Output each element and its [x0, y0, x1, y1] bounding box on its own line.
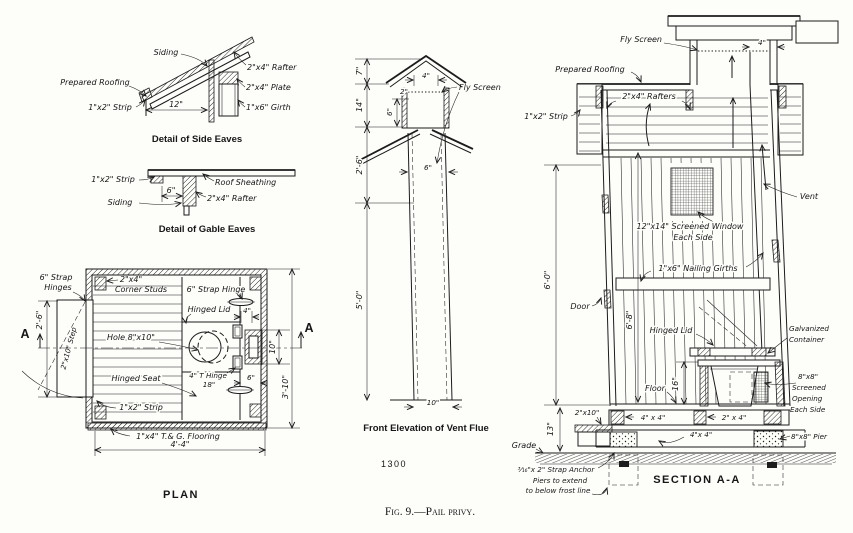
dim-12: 12"	[169, 100, 183, 109]
prepared-roofing-label: Prepared Roofing	[60, 78, 130, 87]
dim-6: 6"	[167, 186, 176, 195]
screened-window	[671, 168, 713, 215]
dim-7: 7"	[355, 67, 364, 76]
door-label: Door	[570, 302, 590, 311]
bench-top	[698, 360, 780, 366]
opening-label: Each Side	[790, 405, 826, 414]
dim-2: 2"	[400, 87, 408, 96]
strip-label: 1"x2" Strip	[91, 175, 135, 184]
hinged-lid-label: Hinged Lid	[650, 326, 694, 335]
opening-label: Opening	[792, 394, 823, 403]
dim-6-top: 6"	[385, 108, 394, 116]
bench-riser	[700, 366, 708, 406]
shaft-post	[686, 90, 693, 110]
pail-privy-drawing: 12" Siding Prepared Roofing 1"x2" Strip …	[0, 0, 853, 533]
ground-hatch	[535, 454, 836, 463]
flooring-strip	[88, 423, 266, 430]
fly-screen-label: Fly Screen	[620, 35, 662, 44]
hinged-seat-label: Hinged Seat	[112, 374, 162, 383]
strip-label: 1"x2" Strip	[524, 112, 568, 121]
vent-label: Vent	[800, 192, 819, 201]
strap-hinges-label: 6" Strap	[40, 273, 73, 282]
figure-page: 12" Siding Prepared Roofing 1"x2" Strip …	[0, 0, 853, 533]
corner-stud	[95, 277, 106, 290]
right-pier	[754, 431, 783, 447]
dim-6-0: 6'-0"	[543, 271, 552, 290]
main-roof-slopes	[358, 134, 471, 166]
detail-gable-eaves: 6" 1"x2" Strip Siding Roof Sheathing 2"x…	[91, 170, 295, 235]
floor-label: Floor	[645, 384, 666, 393]
plate-label: 2"x4" Plate	[246, 83, 291, 92]
section-a-a: 4" 4" x 4" 2" x 4" 2"x10" 4"x 4"	[512, 16, 838, 495]
side-eaves-title: Detail of Side Eaves	[152, 134, 242, 145]
dim-2-6: 2'-6"	[355, 156, 364, 175]
prepared-roofing-label: Prepared Roofing	[555, 65, 625, 74]
window-label: Each Side	[673, 233, 712, 242]
dim-18: 18"	[203, 380, 215, 389]
dim-10: 10"	[427, 398, 439, 407]
floor-boards	[93, 286, 182, 412]
grade-label: Grade	[512, 441, 536, 450]
dim-5-0: 5'-0"	[355, 291, 364, 310]
flue-body	[408, 133, 452, 400]
plan-view: 2"x10" Step A A 2'-6" 10" 3'-10" 4'-4" 6…	[20, 269, 313, 501]
entrance-step	[575, 425, 612, 432]
vent-flue-elevation: 4" 2" 6" 6" 7" 14" 2'-6" 5'-0" 10" Fly S…	[355, 56, 501, 469]
corner-stud	[95, 406, 106, 419]
figure-caption: Fig. 9.—Pail privy.	[385, 506, 475, 518]
dim-4x4-joist: 4" x 4"	[641, 413, 666, 422]
strip-label: 1"x2" Strip	[88, 103, 132, 112]
siding-label: Siding	[154, 48, 179, 57]
dim-14: 14"	[355, 98, 364, 112]
section-marker-a-left: A	[20, 327, 29, 341]
plate-section	[219, 72, 238, 84]
piers-note: to below frost line	[526, 486, 591, 495]
detail-side-eaves: 12" Siding Prepared Roofing 1"x2" Strip …	[60, 37, 297, 145]
middle-girth	[616, 278, 770, 290]
roof-sheathing-label: Roof Sheathing	[215, 178, 276, 187]
dim-4-4: 4'-4"	[171, 440, 190, 449]
section-marker-a-right: A	[304, 321, 313, 335]
left-pier	[610, 432, 637, 447]
plan-title: PLAN	[163, 489, 199, 501]
gable-siding	[184, 206, 189, 215]
rafter-label: 2"x4" Rafter	[247, 63, 297, 72]
seat-hole-dashed	[198, 331, 228, 363]
opening-label: Screened	[792, 383, 826, 392]
siding-label: Siding	[108, 198, 133, 207]
piers-note: Piers to extend	[533, 476, 588, 485]
hinged-lid-label: Hinged Lid	[188, 305, 232, 314]
gable-eaves-title: Detail of Gable Eaves	[159, 224, 256, 235]
hole-label: Hole 8"x10"	[107, 333, 155, 342]
seat-platform-edges	[182, 277, 240, 420]
corner-stud	[250, 404, 261, 417]
rafters-label: 2"x4" Rafters	[622, 92, 676, 101]
strap-hinge-label: 6" Strap Hinge	[187, 285, 246, 294]
dim-2-6: 2'-6"	[35, 311, 44, 330]
window-label: 12"x14" Screened Window	[637, 222, 744, 231]
screened-opening	[754, 372, 768, 402]
dim-2x10: 2"x10"	[575, 408, 600, 417]
dim-10: 10"	[268, 340, 277, 354]
opening-label: 8"x8"	[798, 372, 818, 381]
galvanized-container-label: Container	[789, 335, 825, 344]
dim-6-8: 6'-8"	[625, 311, 634, 330]
corner-studs-label: 2"x4"	[120, 275, 142, 284]
flooring-label: 1"x4" T.& G. Flooring	[136, 432, 220, 441]
dim-3-10: 3'-10"	[281, 375, 290, 399]
sill-4x4-label: 4"x 4"	[690, 430, 712, 439]
girths-label: 1"x6" Nailing Girths	[658, 264, 737, 273]
left-wall-door	[601, 90, 616, 406]
dim-4: 4"	[422, 71, 430, 80]
ceiling-girth	[603, 150, 770, 157]
vent-cap-board	[668, 16, 800, 26]
rafter-label: 2"x4" Rafter	[207, 194, 257, 203]
eave-strip	[139, 88, 152, 102]
dim-4: 4"	[758, 38, 766, 47]
vent-flue-title: Front Elevation of Vent Flue	[363, 423, 489, 434]
corner-stud	[250, 277, 261, 290]
strip-label: 1"x2" Strip	[119, 403, 163, 412]
seat-hole	[189, 332, 221, 362]
vent-cap-end	[796, 21, 838, 43]
dim-16: 16"	[671, 377, 680, 391]
corner-studs-label: Corner Studs	[115, 285, 167, 294]
siding-board	[209, 60, 214, 122]
dim-4: 4"	[243, 306, 251, 315]
section-title: SECTION A-A	[653, 474, 741, 486]
girth-label: 1"x6" Girth	[246, 103, 291, 112]
gable-rafter	[183, 176, 196, 206]
strap-anchor-label: ³⁄₁₆"x 2" Strap Anchor	[518, 465, 596, 474]
fly-screen-label: Fly Screen	[459, 83, 501, 92]
strap-hinges-label: Hinges	[44, 283, 71, 292]
t-hinge-label: 4" T Hinge	[189, 371, 227, 380]
dim-6: 6"	[247, 373, 255, 382]
galvanized-container-label: Galvanized	[789, 324, 829, 333]
plate-number: 1300	[381, 459, 407, 469]
dim-13: 13"	[546, 422, 555, 436]
dim-2x4: 2" x 4"	[722, 413, 747, 422]
seat-lid-edges	[182, 322, 240, 372]
gable-strip	[151, 176, 163, 183]
flue-box-wall	[444, 88, 449, 128]
pier-label: 8"x8" Pier	[791, 432, 828, 441]
dim-6-mid: 6"	[424, 163, 432, 172]
